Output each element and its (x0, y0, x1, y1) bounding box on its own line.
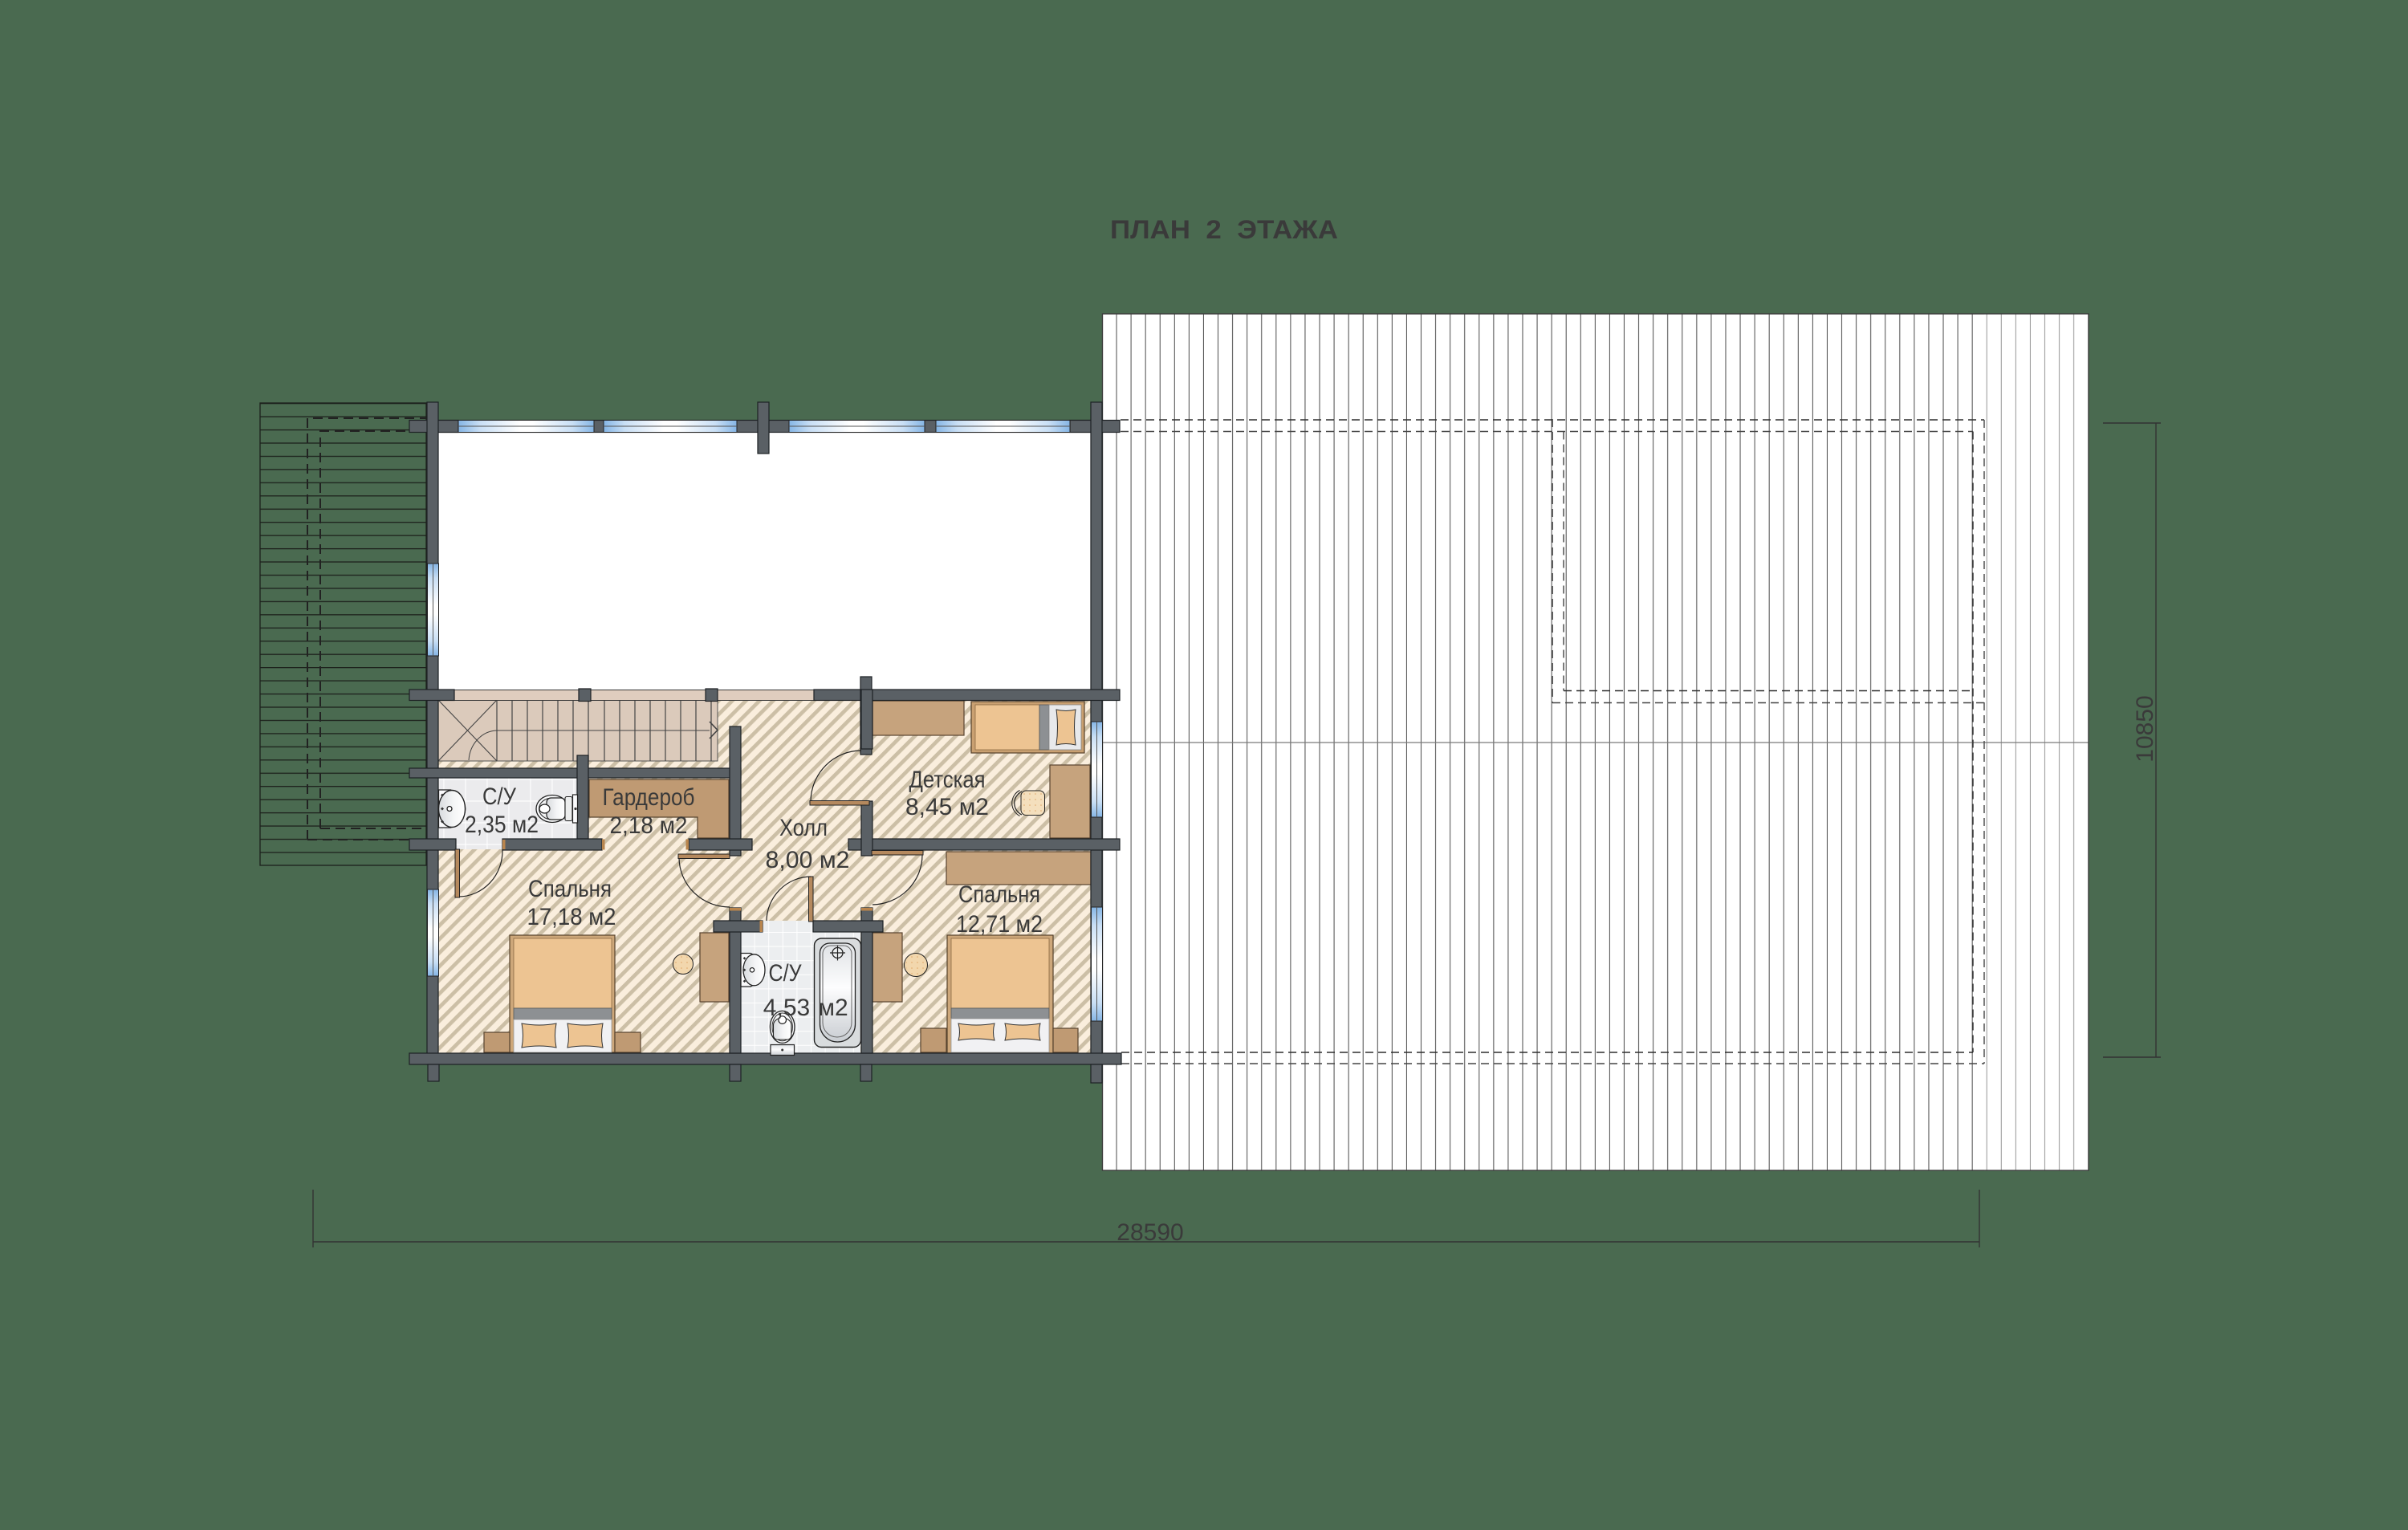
svg-text:Спальня: Спальня (528, 876, 612, 902)
svg-text:12,71 м2: 12,71 м2 (956, 911, 1043, 938)
svg-text:2,35 м2: 2,35 м2 (465, 812, 539, 838)
svg-text:8,45 м2: 8,45 м2 (905, 794, 989, 820)
svg-text:Детская: Детская (909, 767, 986, 793)
svg-text:Спальня: Спальня (958, 881, 1040, 908)
svg-text:4,53: 4,53 (763, 995, 810, 1021)
svg-text:28590: 28590 (1117, 1219, 1183, 1246)
svg-text:Холл: Холл (779, 815, 828, 841)
svg-text:м2: м2 (818, 995, 848, 1021)
svg-text:С/У: С/У (482, 783, 517, 810)
svg-text:ПЛАН 2 ЭТАЖА: ПЛАН 2 ЭТАЖА (1110, 215, 1338, 244)
svg-text:10850: 10850 (2132, 695, 2158, 762)
svg-text:8,00 м2: 8,00 м2 (766, 847, 850, 873)
svg-text:Гардероб: Гардероб (603, 784, 695, 811)
svg-text:2,18 м2: 2,18 м2 (610, 812, 688, 839)
svg-text:17,18 м2: 17,18 м2 (527, 904, 616, 930)
svg-text:С/У: С/У (769, 960, 803, 987)
